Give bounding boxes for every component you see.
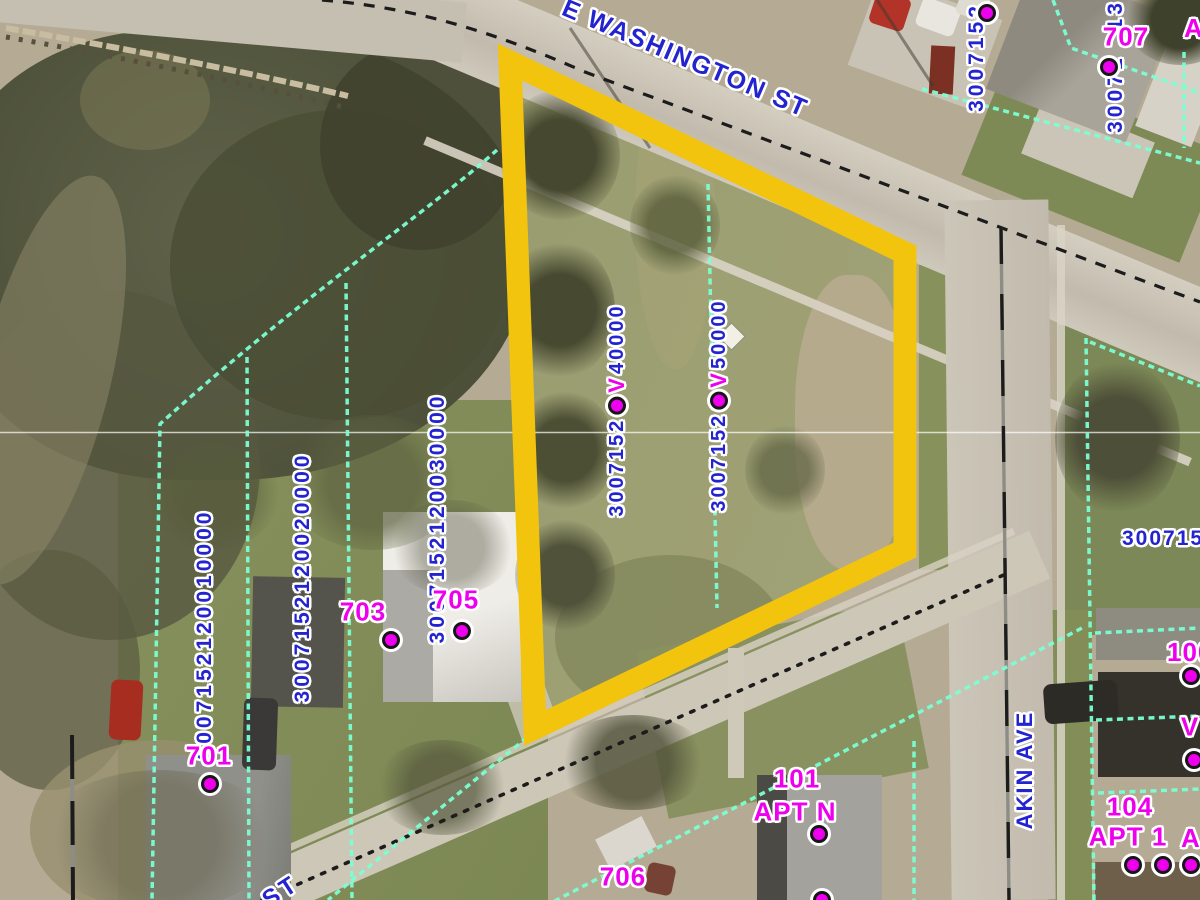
parcel-id-text: 3007152120010000 bbox=[193, 509, 217, 760]
street-label-akin: AKIN AVE bbox=[1012, 711, 1038, 830]
address-point-701[interactable] bbox=[201, 775, 219, 793]
address-label-101-apt[interactable]: APT N bbox=[754, 797, 837, 828]
address-label-703[interactable]: 703 bbox=[340, 597, 386, 628]
parcel-id-text: 3007152120020000 bbox=[291, 452, 315, 703]
parcel-label-50000[interactable]: 3007152 V 50000 bbox=[706, 298, 732, 511]
address-label-104-apt[interactable]: APT 1 bbox=[1089, 822, 1168, 853]
parcel-line-east-1 bbox=[1095, 628, 1200, 633]
address-point-705[interactable] bbox=[453, 622, 471, 640]
map-canvas[interactable]: E WASHINGTON ST AKIN AVE ST 3007152 3007… bbox=[0, 0, 1200, 900]
address-label-705[interactable]: 705 bbox=[433, 585, 479, 616]
parcel-line-sw-diag bbox=[328, 731, 535, 900]
address-label-100[interactable]: 100 bbox=[1167, 637, 1200, 668]
address-point-top-left[interactable] bbox=[978, 4, 996, 22]
utility-line-bottom-left bbox=[72, 735, 73, 900]
parcel-label-40000[interactable]: 3007152 V 40000 bbox=[604, 303, 630, 516]
address-point-dot[interactable] bbox=[608, 397, 626, 415]
address-label-apt-cut-bottom[interactable]: A bbox=[1181, 823, 1200, 854]
parcel-line-703-705 bbox=[346, 283, 352, 900]
guardrail-rail bbox=[6, 28, 348, 96]
marker-v: V bbox=[706, 370, 732, 388]
address-label-706[interactable]: 706 bbox=[600, 862, 646, 893]
parcel-id-text: 50000 bbox=[708, 298, 731, 369]
parcel-id-text: 3007152 bbox=[708, 413, 731, 512]
parcel-line-north-side-2 bbox=[922, 89, 1200, 163]
parcel-id-text: 40000 bbox=[606, 303, 629, 374]
parcel-line-701-703 bbox=[247, 357, 249, 900]
address-label-707[interactable]: 707 bbox=[1103, 22, 1149, 53]
parcel-id-text: 3007152 bbox=[606, 418, 629, 517]
address-label-vacant[interactable]: V bbox=[1181, 712, 1199, 743]
address-point-104-2[interactable] bbox=[1154, 856, 1172, 874]
address-point-vacant[interactable] bbox=[1185, 751, 1200, 769]
address-label-101[interactable]: 101 bbox=[774, 764, 820, 795]
parcel-line-east-akin bbox=[1086, 338, 1094, 900]
address-point-104-3[interactable] bbox=[1182, 856, 1200, 874]
parcel-label-lot1[interactable]: 3007152120010000 bbox=[193, 509, 217, 760]
address-point-104-1[interactable] bbox=[1124, 856, 1142, 874]
guardrail-posts bbox=[6, 37, 348, 108]
address-point-dot[interactable] bbox=[710, 392, 728, 410]
address-label-apt-cut-top[interactable]: A bbox=[1184, 13, 1200, 44]
address-point-707[interactable] bbox=[1100, 58, 1118, 76]
parcel-line-east-diag bbox=[1090, 342, 1200, 386]
parcel-label-lot2[interactable]: 3007152120020000 bbox=[291, 452, 315, 703]
street-label-akin-text: AKIN AVE bbox=[1012, 711, 1038, 830]
address-label-701[interactable]: 701 bbox=[186, 741, 232, 772]
marker-v: V bbox=[604, 375, 630, 393]
pole-shadow-2 bbox=[877, 0, 933, 86]
parcel-label-right-edge[interactable]: 300715 bbox=[1122, 527, 1200, 551]
address-point-101[interactable] bbox=[810, 825, 828, 843]
address-label-104[interactable]: 104 bbox=[1107, 792, 1153, 823]
address-point-703[interactable] bbox=[382, 631, 400, 649]
address-point-100[interactable] bbox=[1182, 667, 1200, 685]
